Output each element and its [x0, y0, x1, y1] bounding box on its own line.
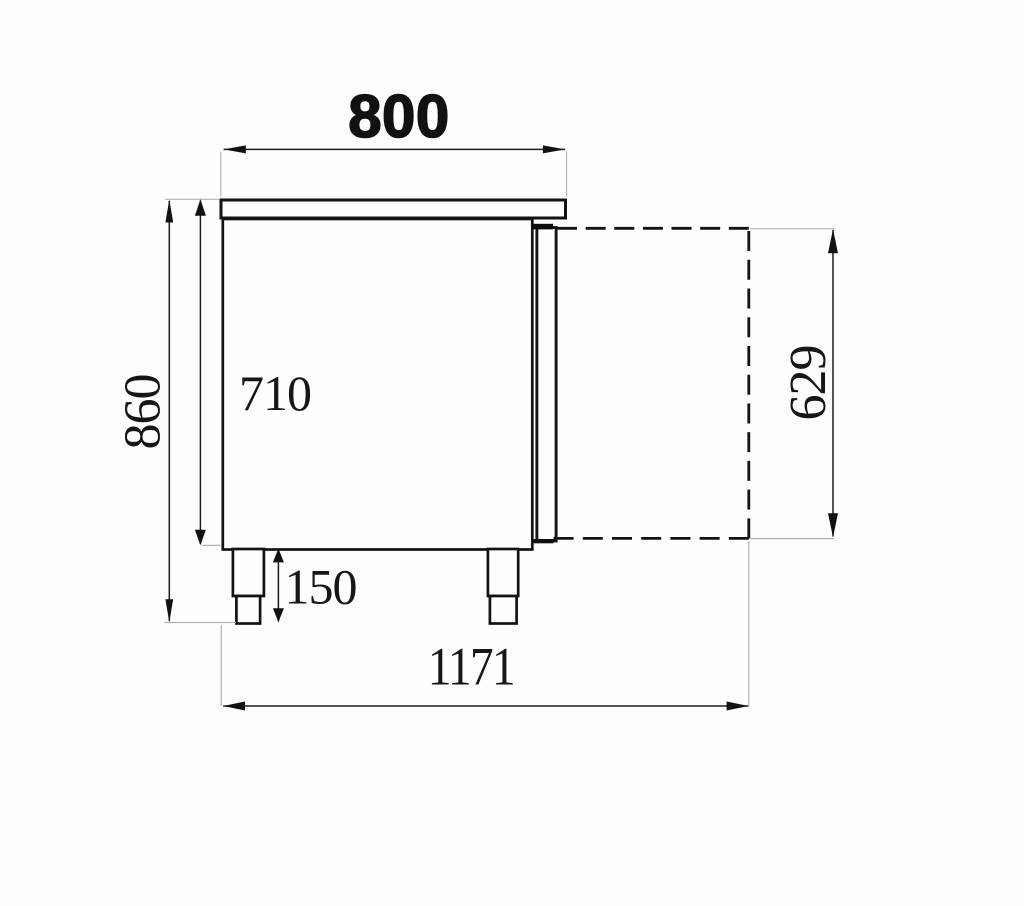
- svg-text:800: 800: [348, 83, 450, 150]
- svg-text:860: 860: [115, 375, 172, 450]
- svg-text:1171: 1171: [428, 638, 514, 697]
- svg-text:629: 629: [780, 346, 837, 421]
- svg-text:710: 710: [239, 365, 311, 421]
- svg-text:150: 150: [285, 558, 357, 614]
